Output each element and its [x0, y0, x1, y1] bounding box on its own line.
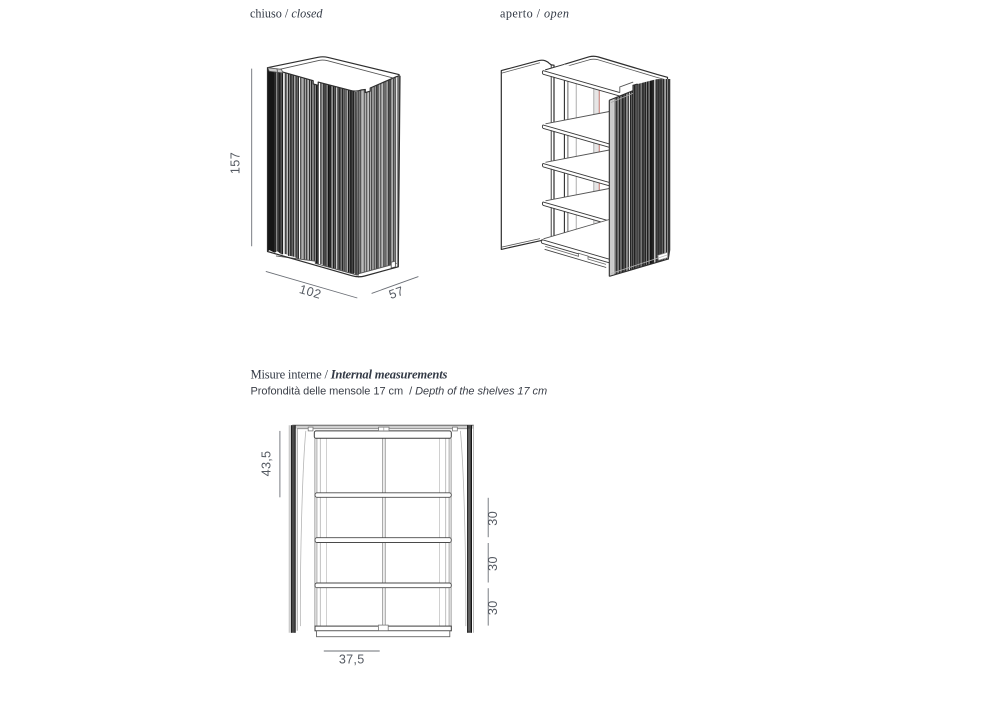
- svg-text:Profondità delle mensole 17 cm: Profondità delle mensole 17 cm / Depth o…: [251, 385, 548, 397]
- svg-text:chiuso / closed: chiuso / closed: [250, 7, 323, 21]
- svg-text:43,5: 43,5: [260, 451, 274, 477]
- svg-text:Misure interne / Internal meas: Misure interne / Internal measurements: [251, 368, 448, 382]
- svg-text:30: 30: [486, 556, 500, 571]
- svg-text:30: 30: [486, 511, 500, 526]
- svg-text:aperto / open: aperto / open: [500, 7, 569, 21]
- svg-text:37,5: 37,5: [339, 653, 365, 667]
- svg-text:30: 30: [486, 600, 500, 615]
- svg-text:157: 157: [229, 152, 243, 174]
